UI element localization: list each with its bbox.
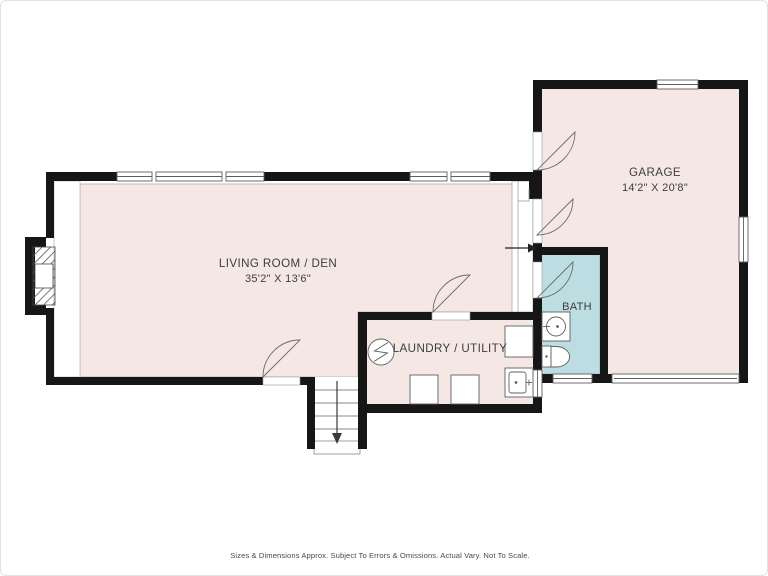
stairs-down-icon xyxy=(314,377,360,454)
laundry-label: LAUNDRY / UTILITY xyxy=(393,342,508,355)
living-door-threshold xyxy=(263,377,300,385)
window xyxy=(739,217,748,262)
washer-icon xyxy=(410,375,438,404)
garage-door xyxy=(612,374,739,383)
toilet-icon xyxy=(542,346,570,367)
garage-label: GARAGE xyxy=(629,166,681,179)
garage-dimensions: 14'2" X 20'8" xyxy=(622,182,688,194)
window xyxy=(156,172,222,181)
room-fills xyxy=(54,85,743,408)
living-room-label: LIVING ROOM / DEN xyxy=(219,257,337,270)
appliance-icon xyxy=(505,326,533,357)
bath-door-threshold xyxy=(533,262,542,298)
floor-plan-page: LIVING ROOM / DEN 35'2" X 13'6" GARAGE 1… xyxy=(0,0,768,576)
fireplace-icon xyxy=(33,247,55,305)
left-wall-recess xyxy=(54,181,80,377)
bath-label: BATH xyxy=(562,301,592,313)
window xyxy=(533,370,542,397)
window xyxy=(657,80,698,89)
window xyxy=(226,172,264,181)
firebox xyxy=(35,264,53,288)
bath-sink-icon xyxy=(542,312,570,341)
dryer-icon xyxy=(451,375,479,404)
window xyxy=(553,374,592,383)
utility-sink-icon xyxy=(505,368,533,397)
window xyxy=(451,172,490,181)
living-room-dimensions: 35'2" X 13'6" xyxy=(245,273,311,285)
window xyxy=(410,172,447,181)
water-heater-icon xyxy=(368,339,394,365)
garage-entry-door-threshold xyxy=(533,199,542,243)
garage-side-door-threshold xyxy=(533,132,542,170)
laundry-door-threshold xyxy=(432,312,470,320)
bath-fixtures xyxy=(542,312,570,367)
disclaimer-text: Sizes & Dimensions Approx. Subject To Er… xyxy=(230,551,529,560)
floor-plan: LIVING ROOM / DEN 35'2" X 13'6" GARAGE 1… xyxy=(0,0,768,576)
window xyxy=(117,172,152,181)
